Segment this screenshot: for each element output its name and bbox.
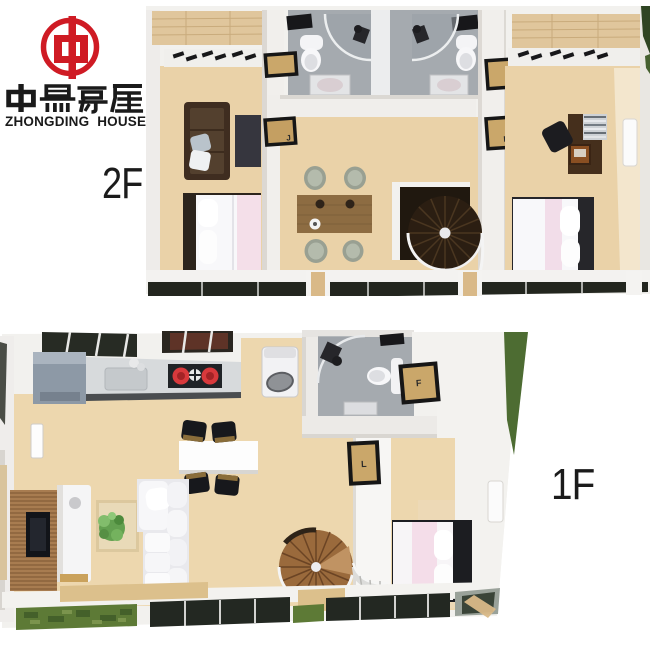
svg-text:J: J bbox=[286, 133, 291, 142]
svg-text:L: L bbox=[361, 459, 368, 469]
